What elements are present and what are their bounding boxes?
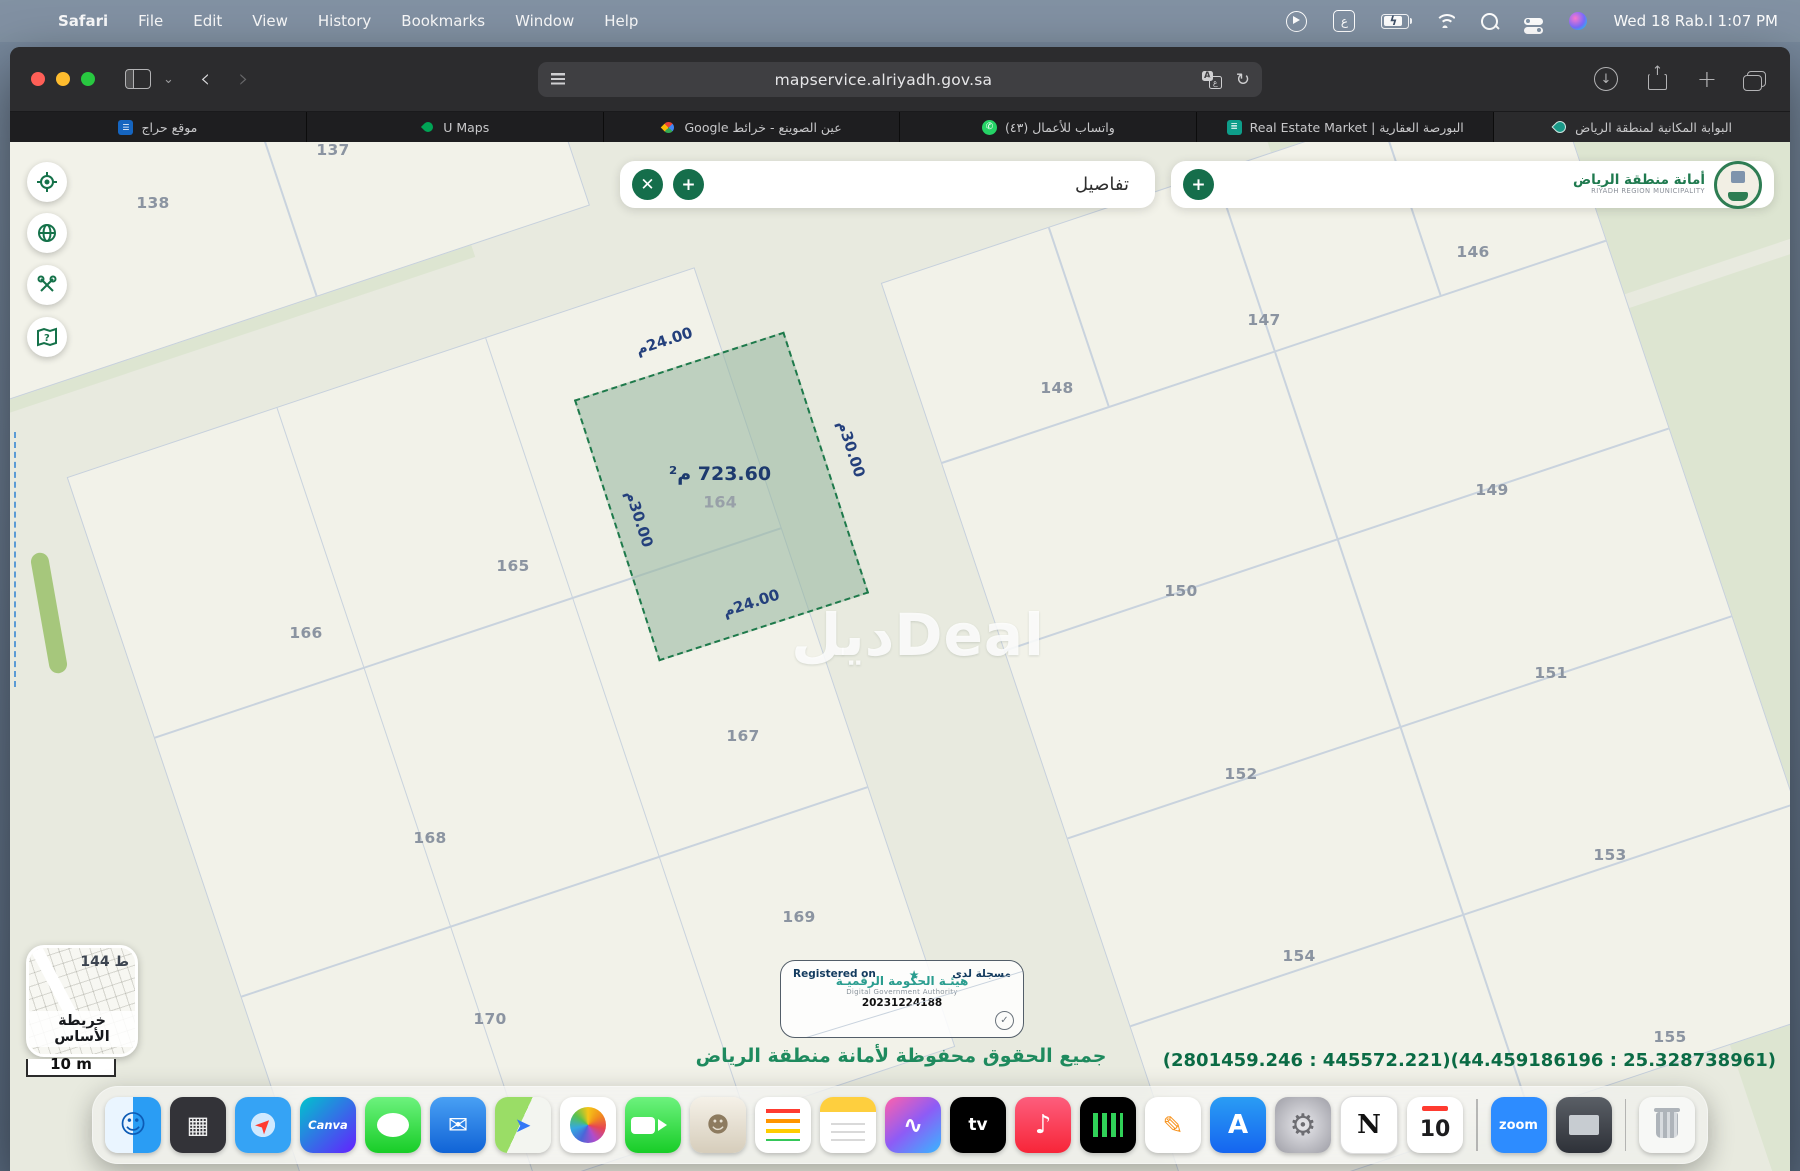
- crosshair-icon: [36, 171, 58, 193]
- tab-label: البوابة المكانية لمنطقة الرياض: [1575, 120, 1732, 135]
- siri-icon[interactable]: [1569, 12, 1587, 30]
- copyright-text: جميع الحقوق محفوظة لأمانة منطقة الرياض: [696, 1045, 1107, 1067]
- tab-favicon: [420, 120, 435, 135]
- green-strip: [30, 551, 69, 674]
- reader-view-icon[interactable]: [551, 73, 565, 86]
- basemap-inset[interactable]: ط 144 خريطة الأساس: [26, 945, 138, 1057]
- watermark-latin: Deal: [894, 601, 1045, 669]
- tab-overview-button[interactable]: [1747, 71, 1766, 87]
- sidebar-toggle-icon[interactable]: [125, 69, 151, 89]
- map-help-button[interactable]: ?: [27, 317, 67, 357]
- tab-label: U Maps: [443, 120, 489, 135]
- dock-music-icon[interactable]: [1015, 1097, 1071, 1153]
- map-canvas[interactable]: 24.00م 30.00م 30.00م 24.00م 723.60 م² 16…: [10, 142, 1790, 1171]
- parcel-number: 148: [1040, 379, 1073, 397]
- new-tab-button[interactable]: +: [1697, 65, 1717, 93]
- dock: [92, 1086, 1708, 1164]
- dock-zoom-icon[interactable]: [1491, 1097, 1547, 1153]
- parcel-number: 169: [782, 908, 815, 926]
- dock-settings-icon[interactable]: [1275, 1097, 1331, 1153]
- tab-bar: موقع حراج U Maps عين الصوينع - خرائط Goo…: [10, 112, 1790, 143]
- parcel-number: 149: [1475, 481, 1508, 499]
- deal-watermark: ديلDeal: [791, 601, 1045, 669]
- parcel-number: 154: [1282, 947, 1315, 965]
- parcel-number: 151: [1534, 664, 1567, 682]
- battery-icon[interactable]: [1381, 14, 1409, 29]
- menu-window[interactable]: Window: [515, 12, 574, 30]
- dock-notion-icon[interactable]: [1340, 1096, 1398, 1154]
- locate-me-button[interactable]: [27, 162, 67, 202]
- parcel-number: 138: [136, 194, 169, 212]
- parcel-number-164: 164: [703, 493, 736, 512]
- dock-facetime-icon[interactable]: [625, 1097, 681, 1153]
- parcel-number: 152: [1224, 765, 1257, 783]
- tab-label: واتساب للأعمال (٤٣): [1005, 120, 1115, 135]
- minimize-window-button[interactable]: [56, 72, 70, 86]
- riyadh-municipality-emblem-icon: [1714, 161, 1762, 209]
- translate-icon[interactable]: [1202, 71, 1222, 89]
- details-bar: ✕ + تفاصيل: [620, 161, 1155, 208]
- details-label: تفاصيل: [1075, 174, 1129, 195]
- dock-notes-icon[interactable]: [820, 1097, 876, 1153]
- dock-launchpad-icon[interactable]: [170, 1097, 226, 1153]
- dimension-right: 30.00م: [834, 418, 869, 479]
- browser-tab[interactable]: عين الصوينع - خرائط Google: [604, 112, 901, 142]
- verified-check-icon: ✓: [995, 1011, 1014, 1030]
- authority-name-english: Digital Government Authority: [793, 988, 1011, 996]
- dock-preview-icon[interactable]: [1556, 1097, 1612, 1153]
- wifi-icon[interactable]: [1435, 14, 1455, 28]
- address-bar[interactable]: mapservice.alriyadh.gov.sa ↻: [538, 62, 1262, 97]
- parcel-number: 167: [726, 727, 759, 745]
- globe-icon: [36, 222, 58, 244]
- plan-number: ط 144: [80, 954, 129, 970]
- reload-icon[interactable]: ↻: [1236, 70, 1250, 90]
- parcel-number: 147: [1247, 311, 1280, 329]
- spotlight-search-icon[interactable]: [1481, 13, 1498, 30]
- basemap-globe-button[interactable]: [27, 213, 67, 253]
- dock-mail-icon[interactable]: [430, 1097, 486, 1153]
- svg-text:?: ?: [44, 333, 50, 344]
- watermark-arabic: ديل: [791, 601, 894, 669]
- menu-bar: Safari File Edit View History Bookmarks …: [0, 0, 1800, 42]
- tab-label: عين الصوينع - خرائط Google: [684, 120, 841, 135]
- basemap-label: خريطة الأساس: [29, 1011, 135, 1047]
- parcel-number: 153: [1593, 846, 1626, 864]
- menu-safari[interactable]: Safari: [58, 12, 108, 30]
- tab-favicon: [1227, 120, 1242, 135]
- municipality-logo: أمانة منطقة الرياض RIYADH REGION MUNICIP…: [1573, 161, 1762, 209]
- browser-tab[interactable]: البوابة المكانية لمنطقة الرياض: [1494, 112, 1790, 142]
- dock-trash-icon[interactable]: [1639, 1097, 1695, 1153]
- menu-bookmarks[interactable]: Bookmarks: [401, 12, 485, 30]
- tools-button[interactable]: [27, 265, 67, 305]
- forward-button[interactable]: ›: [238, 64, 248, 94]
- browser-tab[interactable]: واتساب للأعمال (٤٣): [900, 112, 1197, 142]
- dock-lightroom-icon[interactable]: [885, 1097, 941, 1153]
- keyboard-layout-icon[interactable]: ع: [1333, 10, 1355, 32]
- tab-favicon: [982, 120, 997, 135]
- tab-favicon: [661, 120, 676, 135]
- close-details-button[interactable]: ✕: [632, 169, 663, 200]
- search-bar[interactable]: + أمانة منطقة الرياض RIYADH REGION MUNIC…: [1171, 161, 1774, 208]
- dock-contacts-icon[interactable]: [690, 1097, 746, 1153]
- media-play-icon[interactable]: [1286, 11, 1307, 32]
- share-button[interactable]: [1648, 74, 1667, 90]
- back-button[interactable]: ‹: [200, 64, 210, 94]
- municipality-name-arabic: أمانة منطقة الرياض: [1573, 173, 1705, 189]
- menu-help[interactable]: Help: [604, 12, 638, 30]
- add-details-button[interactable]: +: [673, 169, 704, 200]
- scale-bar: 10 m: [26, 1059, 116, 1077]
- dock-finder-icon[interactable]: [105, 1097, 161, 1153]
- parcel-number: 155: [1653, 1028, 1686, 1046]
- parcel-number: 137: [316, 142, 349, 159]
- dga-registration-badge: Registered on ٭ مسجلة لدى هيئـة الحكومة …: [780, 960, 1024, 1038]
- tab-label: البورصة العقارية | Real Estate Market: [1250, 120, 1464, 135]
- parcel-number: 168: [413, 829, 446, 847]
- browser-toolbar: ⌄ ‹ › mapservice.alriyadh.gov.sa ↻ ↓ +: [10, 47, 1790, 112]
- scale-label: 10 m: [28, 1055, 114, 1073]
- url-text[interactable]: mapservice.alriyadh.gov.sa: [565, 71, 1202, 89]
- browser-tab[interactable]: U Maps: [307, 112, 604, 142]
- dock-messages-icon[interactable]: [365, 1097, 421, 1153]
- menu-history[interactable]: History: [318, 12, 371, 30]
- menu-file[interactable]: File: [138, 12, 163, 30]
- dock-divider: [1476, 1099, 1478, 1151]
- dock-appstore-icon[interactable]: [1210, 1097, 1266, 1153]
- browser-tab[interactable]: موقع حراج: [10, 112, 307, 142]
- municipality-name-english: RIYADH REGION MUNICIPALITY: [1573, 188, 1705, 196]
- control-center-icon[interactable]: [1524, 18, 1543, 25]
- safari-window: ⌄ ‹ › mapservice.alriyadh.gov.sa ↻ ↓ + م…: [10, 47, 1790, 1171]
- menu-view[interactable]: View: [252, 12, 288, 30]
- dock-pages-icon[interactable]: [1145, 1097, 1201, 1153]
- boundary-dashed-line: [14, 432, 16, 687]
- map-question-icon: ?: [36, 326, 58, 348]
- parcel-number: 165: [496, 557, 529, 575]
- menu-bar-clock[interactable]: Wed 18 Rab.I 1:07 PM: [1613, 12, 1778, 30]
- tools-icon: [36, 274, 58, 296]
- tab-favicon: [118, 120, 133, 135]
- dock-divider: [1625, 1099, 1627, 1151]
- browser-tab[interactable]: البورصة العقارية | Real Estate Market: [1197, 112, 1494, 142]
- downloads-button[interactable]: ↓: [1594, 67, 1618, 91]
- dock-safari-icon[interactable]: [235, 1097, 291, 1153]
- parcel-number: 146: [1456, 243, 1489, 261]
- parcel-number: 150: [1164, 582, 1197, 600]
- add-search-button[interactable]: +: [1183, 169, 1214, 200]
- dock-reminders-icon[interactable]: [755, 1097, 811, 1153]
- parcel-number: 166: [289, 624, 322, 642]
- parcel-number: 170: [473, 1010, 506, 1028]
- map-coordinates: (2801459.246 : 445572.221)(44.459186196 …: [1163, 1050, 1776, 1071]
- parcel-area-label: 723.60 م²: [669, 463, 771, 485]
- menu-edit[interactable]: Edit: [193, 12, 222, 30]
- close-window-button[interactable]: [31, 72, 45, 86]
- dock-calendar-icon[interactable]: [1407, 1097, 1463, 1153]
- dock-maps-icon[interactable]: [495, 1097, 551, 1153]
- chevron-down-icon[interactable]: ⌄: [163, 72, 174, 87]
- dock-stocks-icon[interactable]: [1080, 1097, 1136, 1153]
- dock-canva-icon[interactable]: [300, 1097, 356, 1153]
- zoom-window-button[interactable]: [81, 72, 95, 86]
- tab-favicon: [1552, 120, 1567, 135]
- dock-photos-icon[interactable]: [560, 1097, 616, 1153]
- tab-label: موقع حراج: [141, 120, 197, 135]
- dock-appletv-icon[interactable]: [950, 1097, 1006, 1153]
